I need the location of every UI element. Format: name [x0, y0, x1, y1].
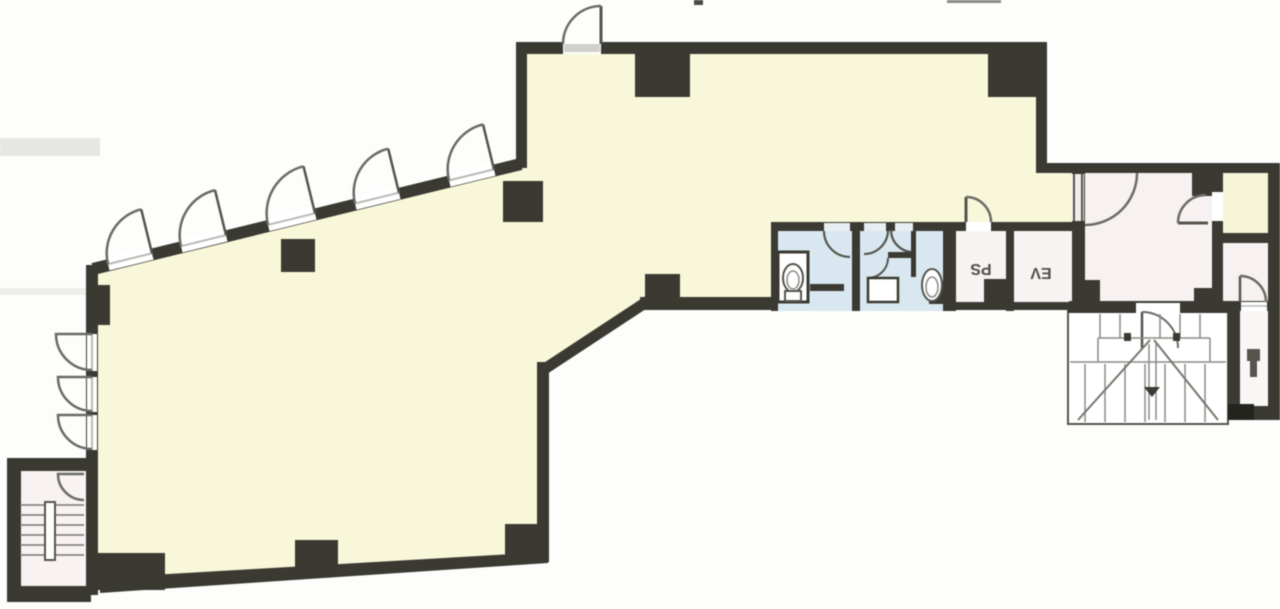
svg-text:PS: PS: [970, 260, 992, 277]
svg-text:EV: EV: [1030, 264, 1052, 281]
